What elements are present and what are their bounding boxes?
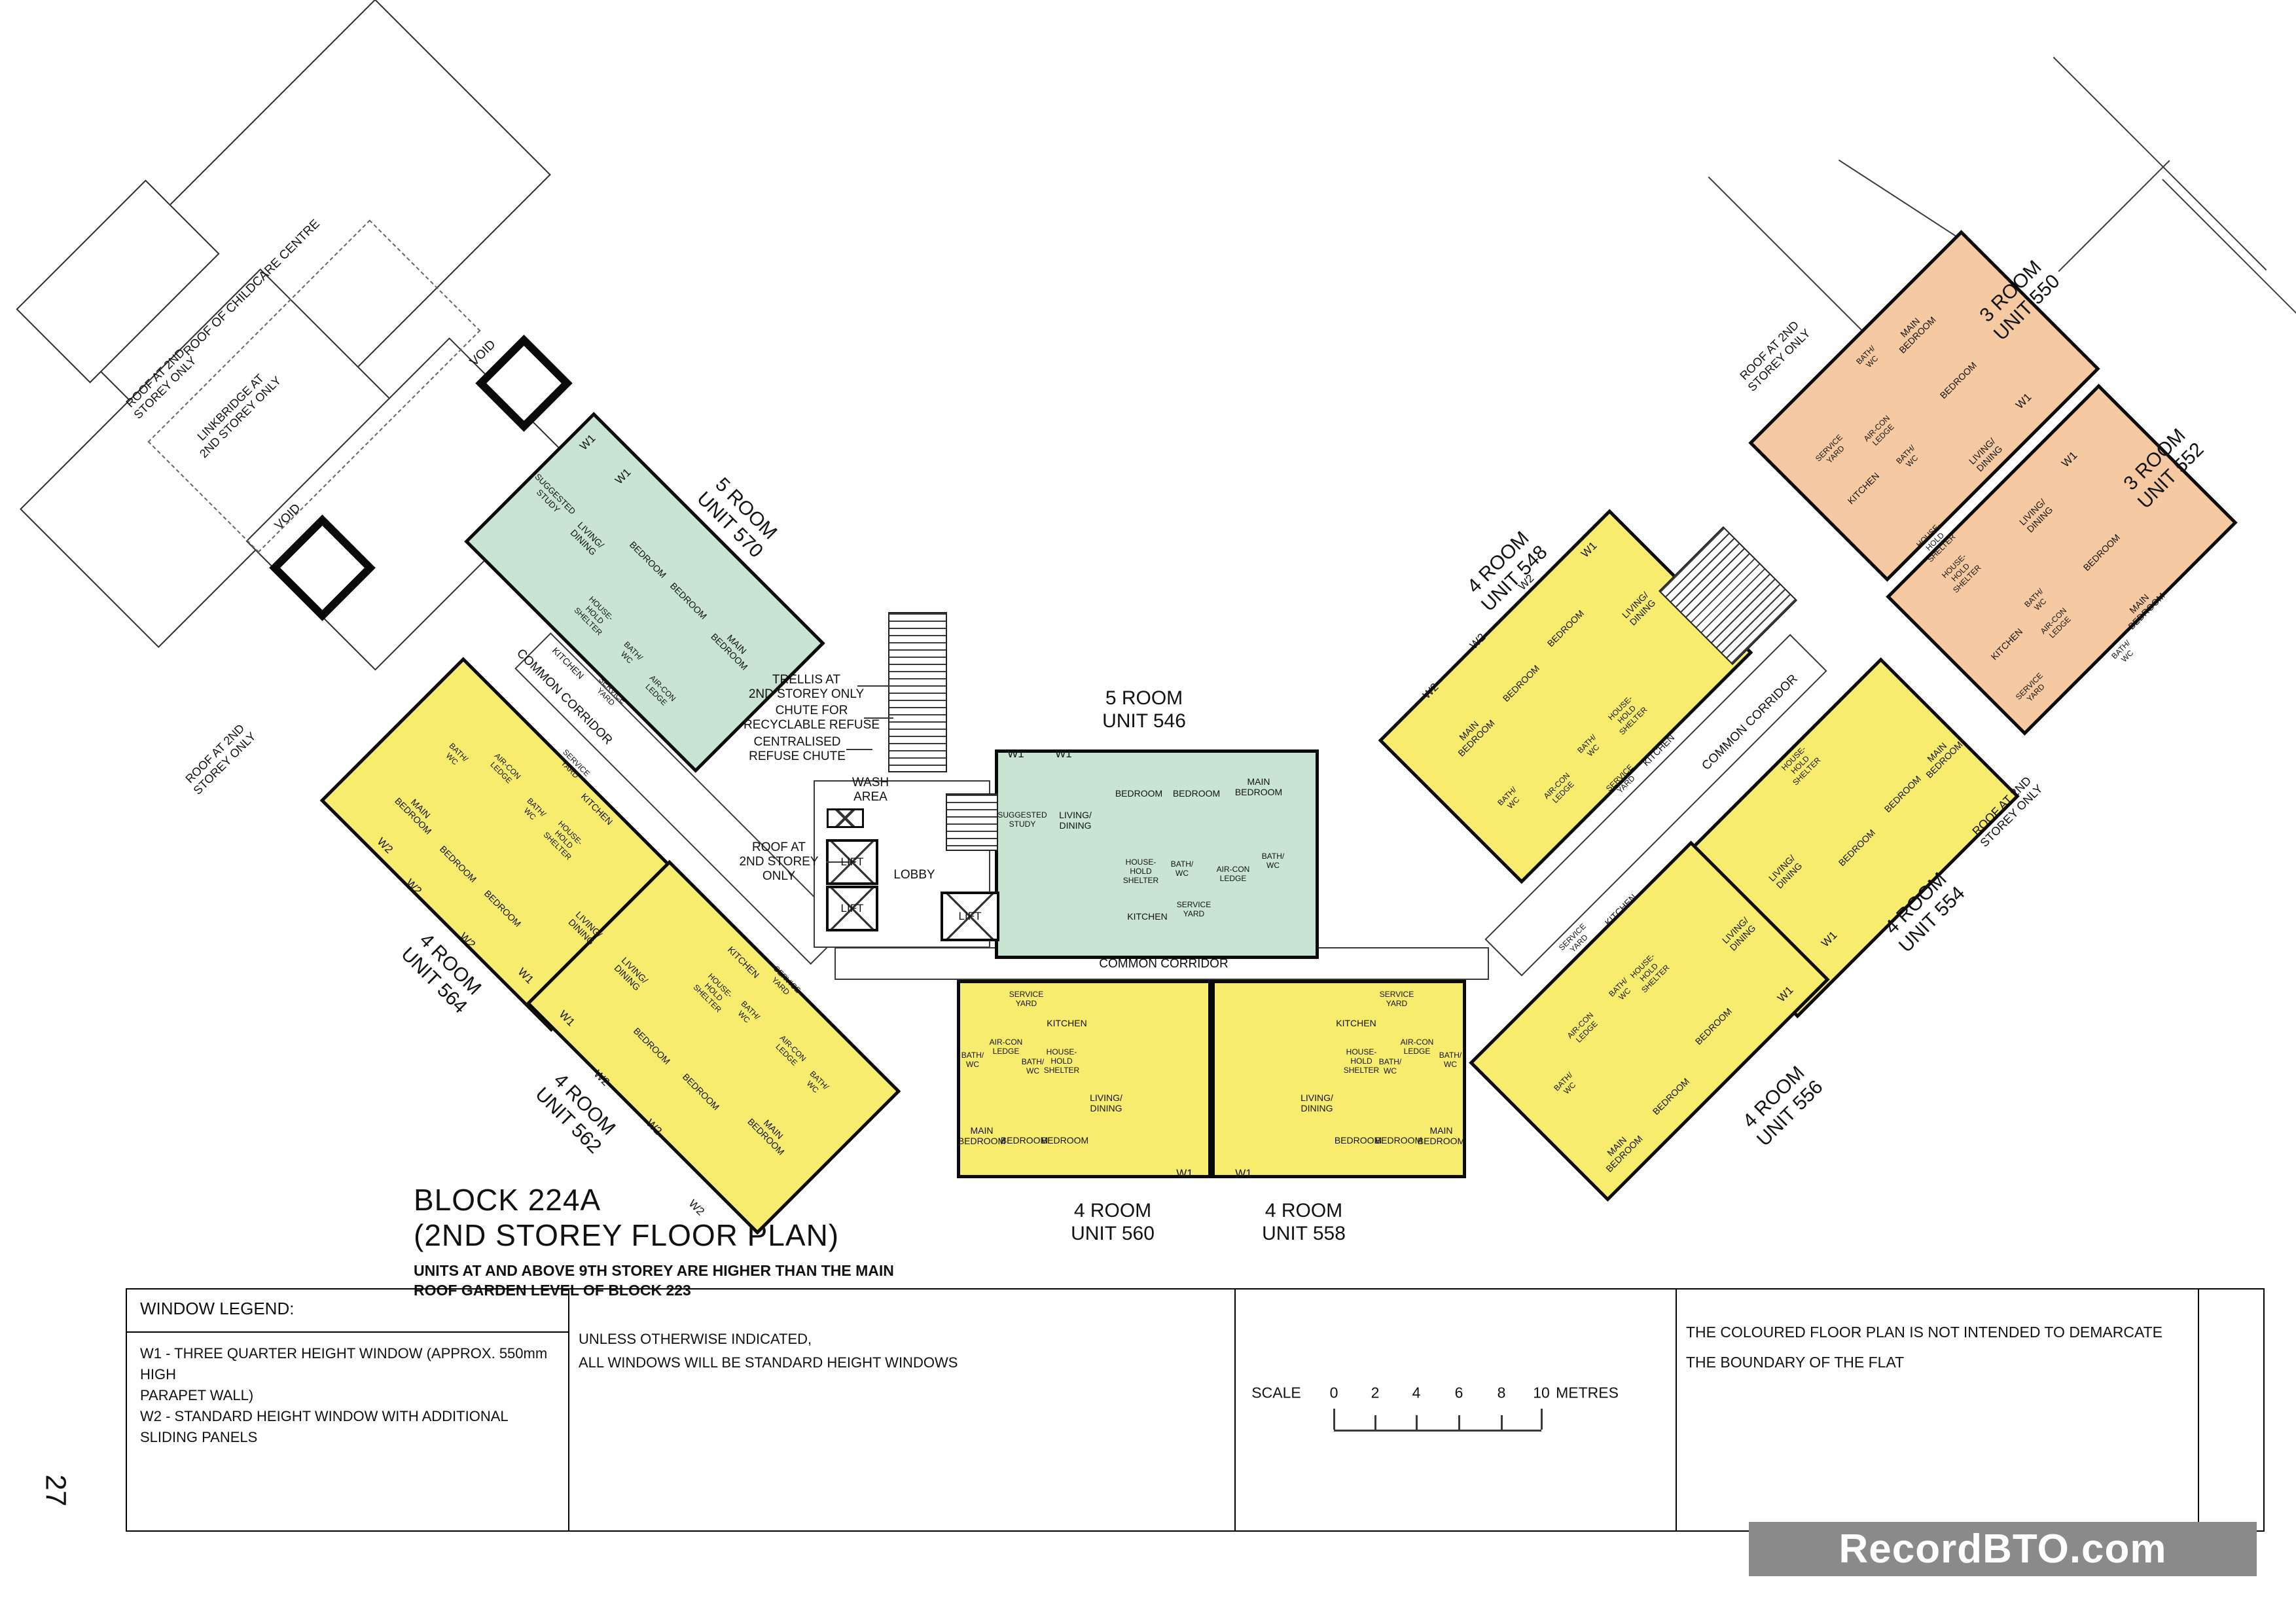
boundary-disclaimer-note: THE COLOURED FLOOR PLAN IS NOT INTENDED … — [1686, 1317, 2162, 1377]
dimension-line-3 — [2053, 57, 2267, 271]
window-mark: W1 — [1055, 748, 1072, 761]
room-label: LIVING/ DINING — [1059, 810, 1092, 831]
scale-tick-10 — [1541, 1409, 1543, 1430]
unit-558-block — [1211, 980, 1466, 1178]
watermark: RecordBTO.com — [1749, 1522, 2257, 1576]
room-label: HOUSE- HOLD SHELTER — [1123, 858, 1158, 886]
legend-divider — [1234, 1290, 1236, 1530]
room-label: KITCHEN — [1127, 911, 1167, 922]
scale-tick-label: 8 — [1498, 1384, 1506, 1402]
room-label: AIR-CON LEDGE — [1401, 1038, 1434, 1056]
window-mark: W1 — [1235, 1167, 1252, 1180]
unit-556-label: 4 ROOM UNIT 556 — [1736, 1060, 1828, 1151]
room-label: BATH/ WC — [1022, 1058, 1044, 1076]
room-label: SERVICE YARD — [1009, 990, 1043, 1009]
common-corridor-label-center: COMMON CORRIDOR — [1099, 957, 1228, 971]
legend-divider — [568, 1290, 569, 1530]
room-label: BATH/ WC — [1262, 852, 1284, 871]
unit-558-label: 4 ROOM UNIT 558 — [1262, 1200, 1346, 1246]
scale-tick-label: 4 — [1412, 1384, 1421, 1402]
room-label: BEDROOM — [1335, 1135, 1382, 1146]
legend-divider — [2198, 1290, 2199, 1530]
scale-tick-label: 10 — [1533, 1384, 1550, 1402]
window-legend-title: WINDOW LEGEND: — [140, 1299, 294, 1319]
window-legend-items: W1 - THREE QUARTER HEIGHT WINDOW (APPROX… — [140, 1343, 559, 1448]
lift-label-2: LIFT — [841, 902, 864, 915]
room-label: SUGGESTED STUDY — [997, 811, 1047, 829]
legend-divider — [1676, 1290, 1677, 1530]
dimension-line-2 — [1839, 160, 1957, 238]
scale-tick-2 — [1374, 1415, 1376, 1430]
floor-plan-sheet: 5 ROOM UNIT 5704 ROOM UNIT 5644 ROOM UNI… — [0, 0, 2296, 1624]
scale-tick-4 — [1416, 1415, 1418, 1430]
leader-refuse — [846, 749, 872, 750]
room-label: BATH/ WC — [1439, 1051, 1462, 1070]
legend-row: WINDOW LEGEND: W1 - THREE QUARTER HEIGHT… — [126, 1288, 2265, 1532]
refuse-chute-box — [827, 808, 864, 828]
dimension-line-5 — [2058, 160, 2170, 272]
room-label: BEDROOM — [1041, 1135, 1088, 1146]
lobby-label: LOBBY — [893, 868, 935, 882]
room-label: MAIN BEDROOM — [1418, 1125, 1465, 1146]
wash-area-label: WASH AREA — [852, 776, 889, 804]
unit-560-block — [957, 980, 1211, 1178]
room-label: HOUSE- HOLD SHELTER — [1044, 1048, 1079, 1075]
room-label: BATH/ WC — [961, 1051, 984, 1070]
scale-tick-label: 6 — [1455, 1384, 1463, 1402]
trellis-band — [888, 612, 947, 772]
room-label: LIVING/ DINING — [1090, 1092, 1122, 1113]
room-label: MAIN BEDROOM — [958, 1125, 1005, 1146]
window-mark: W1 — [1007, 748, 1024, 761]
window-legend-underline — [127, 1331, 569, 1333]
room-label: BEDROOM — [1115, 788, 1162, 799]
lift-label-3: LIFT — [959, 910, 982, 923]
scale-tick-0 — [1333, 1409, 1335, 1430]
room-label: HOUSE- HOLD SHELTER — [1344, 1048, 1379, 1075]
note-roof-2nd-ne: ROOF AT 2ND STOREY ONLY — [1736, 317, 1814, 395]
lift-label-1: LIFT — [841, 856, 864, 869]
scale-tick-8 — [1501, 1415, 1503, 1430]
room-label: BEDROOM — [1375, 1135, 1422, 1146]
room-label: BEDROOM — [1173, 788, 1220, 799]
room-label: AIR-CON LEDGE — [1217, 865, 1250, 884]
room-label: MAIN BEDROOM — [1235, 776, 1282, 797]
room-label: BATH/ WC — [1379, 1058, 1401, 1076]
dimension-line-4 — [2162, 179, 2296, 319]
leader-trellis — [857, 685, 920, 687]
note-refuse-chute: CENTRALISED REFUSE CHUTE — [749, 735, 846, 764]
page-subtitle: (2ND STOREY FLOOR PLAN) — [414, 1218, 894, 1253]
unit-560-label: 4 ROOM UNIT 560 — [1071, 1200, 1155, 1246]
page-title: BLOCK 224A — [414, 1182, 894, 1218]
room-label: KITCHEN — [1047, 1018, 1086, 1028]
scale-bar-line — [1334, 1430, 1541, 1432]
stair-center — [946, 793, 998, 851]
scale-tick-label: 2 — [1371, 1384, 1380, 1402]
room-label: BATH/ WC — [1171, 860, 1193, 878]
unit-546-label: 5 ROOM UNIT 546 — [1102, 687, 1186, 733]
note-roof-2nd-center: ROOF AT 2ND STOREY ONLY — [739, 840, 818, 884]
room-label: LIVING/ DINING — [1300, 1092, 1333, 1113]
windows-standard-note: UNLESS OTHERWISE INDICATED, ALL WINDOWS … — [579, 1327, 958, 1375]
scale-label: SCALE — [1251, 1384, 1300, 1402]
scale-tick-label: 0 — [1330, 1384, 1338, 1402]
room-label: SERVICE YARD — [1177, 901, 1211, 919]
room-label: KITCHEN — [1336, 1018, 1376, 1028]
page-number: 27 — [39, 1475, 71, 1507]
note-trellis: TRELLIS AT 2ND STOREY ONLY — [749, 673, 864, 702]
scale-unit-label: METRES — [1556, 1384, 1619, 1402]
note-recyclable-chute: CHUTE FOR RECYCLABLE REFUSE — [744, 704, 880, 732]
room-label: AIR-CON LEDGE — [990, 1038, 1023, 1056]
window-mark: W1 — [1176, 1167, 1193, 1180]
scale-tick-6 — [1458, 1415, 1460, 1430]
room-label: SERVICE YARD — [1380, 990, 1414, 1009]
title-block: BLOCK 224A (2ND STOREY FLOOR PLAN) UNITS… — [414, 1182, 894, 1300]
note-roof-2nd-sw: ROOF AT 2ND STOREY ONLY — [181, 720, 259, 798]
